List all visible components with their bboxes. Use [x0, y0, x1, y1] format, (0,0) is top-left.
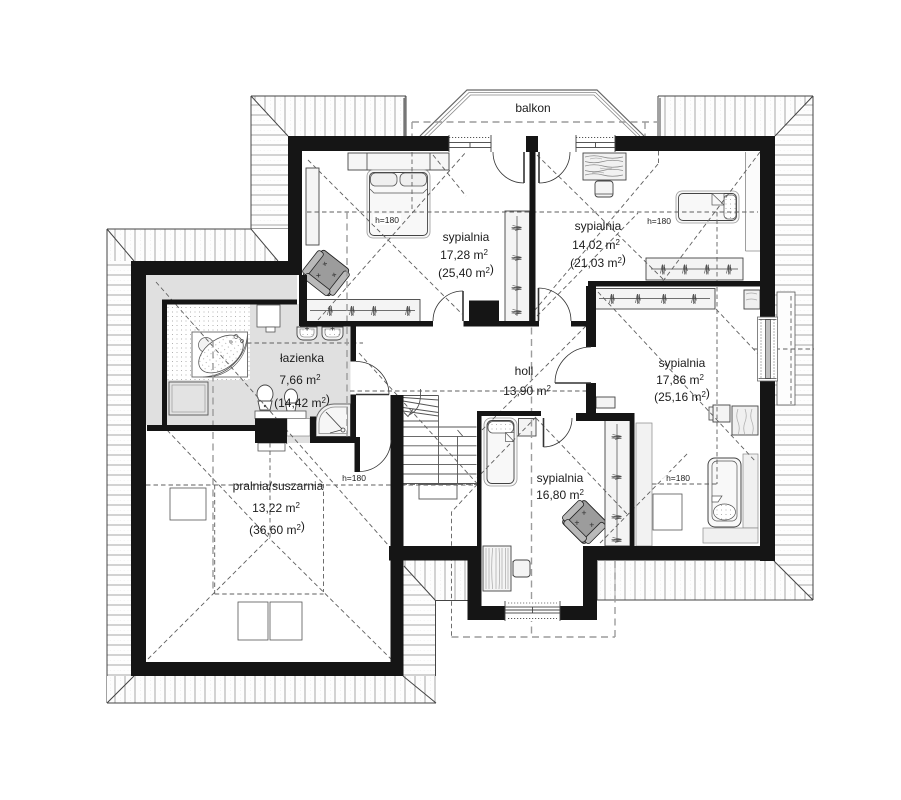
svg-text:h=180: h=180: [342, 473, 366, 483]
svg-text:sypialnia: sypialnia: [443, 230, 490, 244]
svg-text:pralnia/suszarnia: pralnia/suszarnia: [233, 479, 324, 493]
svg-text:sypialnia: sypialnia: [659, 356, 706, 370]
svg-text:h=180: h=180: [647, 216, 671, 226]
svg-text:sypialnia: sypialnia: [537, 471, 584, 485]
svg-text:balkon: balkon: [515, 101, 550, 115]
svg-text:17,86 m2: 17,86 m2: [656, 373, 704, 387]
svg-text:h=180: h=180: [666, 473, 690, 483]
svg-text:16,80 m2: 16,80 m2: [536, 488, 584, 502]
svg-text:13,90 m2: 13,90 m2: [503, 384, 551, 398]
svg-text:łazienka: łazienka: [280, 351, 324, 365]
svg-text:sypialnia: sypialnia: [575, 219, 622, 233]
svg-text:h=180: h=180: [375, 215, 399, 225]
svg-text:7,66 m2: 7,66 m2: [279, 373, 321, 387]
svg-text:17,28 m2: 17,28 m2: [440, 248, 488, 262]
svg-text:13,22 m2: 13,22 m2: [252, 501, 300, 515]
svg-text:holl: holl: [515, 364, 534, 378]
svg-text:14,02 m2: 14,02 m2: [572, 238, 620, 252]
